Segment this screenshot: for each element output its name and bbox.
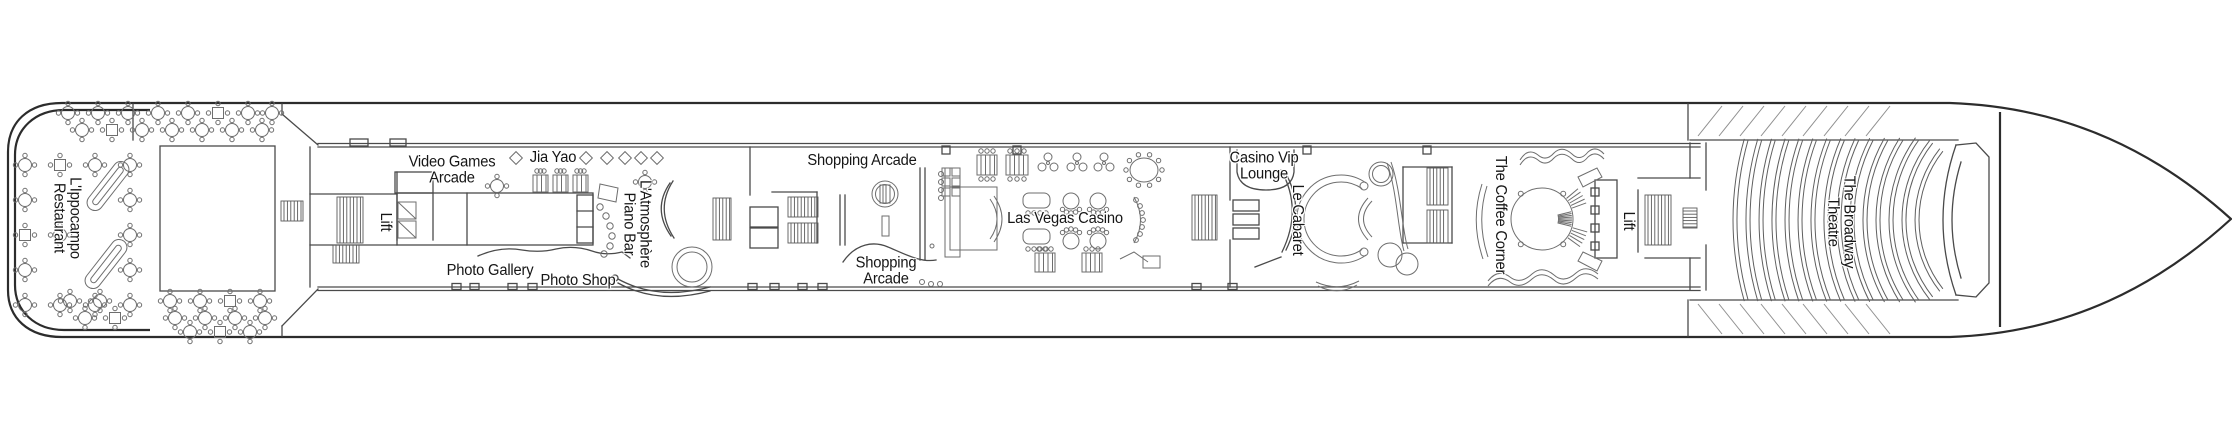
- label-shopping-arcade-top: Shopping Arcade: [807, 153, 916, 169]
- label-photo-shop: Photo Shop: [540, 273, 615, 289]
- label-lift-aft: Lift: [377, 213, 393, 232]
- deck-plan: L'Ippocampo Restaurant Lift Video Games …: [0, 0, 2232, 440]
- label-line: The Broadway: [1840, 176, 1856, 269]
- label-broadway-theatre: The Broadway Theatre: [1824, 176, 1857, 269]
- label-le-cabaret: Le Cabaret: [1289, 185, 1305, 256]
- label-line: L'Atmosphère: [636, 180, 652, 268]
- label-atmosphere-piano-bar: L'Atmosphère Piano Bar: [620, 180, 653, 268]
- label-line: Lounge: [1229, 167, 1298, 183]
- label-line: Arcade: [409, 171, 496, 187]
- furniture-symbols: [13, 101, 1604, 343]
- label-lift-fwd: Lift: [1620, 212, 1636, 231]
- label-line: L'Ippocampo: [66, 177, 82, 259]
- label-las-vegas-casino: Las Vegas Casino: [1007, 211, 1123, 227]
- label-jia-yao: Jia Yao: [530, 150, 576, 166]
- label-video-games-arcade: Video Games Arcade: [409, 155, 496, 188]
- label-line: Video Games: [409, 155, 496, 171]
- label-casino-vip-lounge: Casino Vip Lounge: [1229, 151, 1298, 184]
- label-line: Arcade: [856, 272, 917, 288]
- label-line: Theatre: [1824, 176, 1840, 269]
- label-line: Shopping: [856, 256, 917, 272]
- label-ippocampo-restaurant: L'Ippocampo Restaurant: [50, 177, 83, 259]
- label-line: Piano Bar: [620, 180, 636, 268]
- label-photo-gallery: Photo Gallery: [447, 263, 534, 279]
- label-line: Restaurant: [50, 177, 66, 259]
- label-coffee-corner: The Coffee Corner: [1492, 156, 1508, 274]
- label-line: Casino Vip: [1229, 151, 1298, 167]
- label-shopping-arcade-bottom: Shopping Arcade: [856, 256, 917, 289]
